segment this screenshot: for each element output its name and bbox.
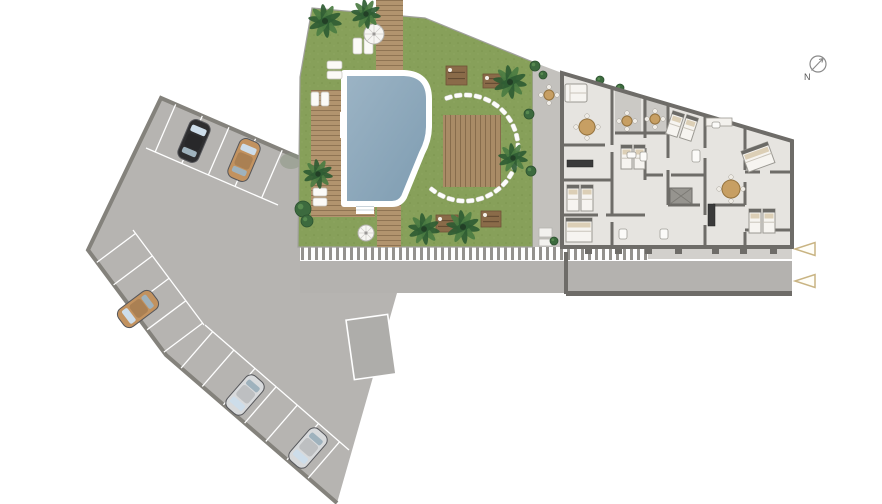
white-lounger [327,71,342,79]
bush-body [550,237,558,245]
bed-pillow [583,190,592,195]
palm-trunk [460,224,466,230]
chair [547,101,552,106]
bush-body [295,201,311,217]
bed-mattress [749,209,761,233]
chair [729,199,734,204]
bath-fixture [692,150,700,162]
entrance-arrow [795,243,815,256]
wood-walkway-bottom [377,204,401,247]
bush-highlight [540,72,543,75]
chair [617,119,622,124]
lounger-pillow [485,76,489,80]
fence-stub [712,249,719,254]
site-plan-canvas: N [0,0,882,504]
white-lounger [311,92,319,106]
entrance-arrows [795,243,815,288]
chair [661,117,666,122]
chair [729,175,734,180]
stepping-stone [466,198,474,203]
wood-deck-center [443,115,501,187]
driveway-wall-left [564,252,568,294]
single-parking-stall [346,314,396,379]
bush-highlight [532,63,536,67]
bush [301,215,313,227]
table-top [579,119,595,135]
chair [596,125,601,130]
bed-headboard [634,145,645,149]
fence-stub [770,249,777,254]
chair [539,93,544,98]
chair [585,136,590,141]
bed [581,185,593,211]
white-lounger [327,61,342,69]
chair [574,125,579,130]
bed [763,209,775,233]
bed-pillow [568,223,591,228]
bed-pillow [751,214,760,219]
bed-headboard [749,209,761,213]
access-road [300,261,792,293]
bush [539,71,547,79]
chair [547,85,552,90]
bed-mattress [566,218,592,242]
parasol-pole [364,231,367,234]
chair [555,93,560,98]
bush [524,109,534,119]
lounger-pillow [438,217,442,221]
parasol [358,225,374,241]
white-lounger [321,92,329,106]
bed-pillow [569,190,578,195]
chair [625,127,630,132]
chair [653,109,658,114]
bath-fixture [619,229,627,239]
fence-stub [675,249,682,254]
fence-stub [645,249,652,254]
annotations: N [795,56,826,288]
chair [717,187,722,192]
bed-pillow [765,214,774,219]
fence-stub [615,249,622,254]
bush-highlight [528,168,532,172]
bush [530,61,540,71]
bush-body [539,71,547,79]
bed-headboard [581,185,593,189]
apartment-building [539,73,792,247]
bed-mattress [763,209,775,233]
bed-headboard [566,218,592,222]
stepping-stone [464,93,472,98]
chair [653,125,658,130]
bush-highlight [298,204,304,210]
bush [526,166,536,176]
palm-trunk [315,171,320,176]
kitchen-counter [567,160,593,167]
compass-label: N [804,72,811,82]
bath-fixture [660,229,668,239]
terrace-utility-boxes [539,228,552,246]
palm-trunk [510,155,515,160]
site-plan: N [0,0,882,504]
fence-stub [740,249,747,254]
bed-mattress [567,185,579,211]
palm-trunk [421,226,427,232]
bed [749,209,761,233]
stair-core [670,188,692,204]
compass-icon: N [804,56,826,82]
chair [741,187,746,192]
table-top [622,116,632,126]
bush-body [530,61,540,71]
table-top [650,114,660,124]
kitchen-counter [708,204,715,226]
white-lounger [353,38,362,54]
driveway-wall-bottom [566,291,792,296]
chair [645,117,650,122]
stepping-stone [454,93,463,98]
bed-headboard [567,185,579,189]
white-lounger [313,188,327,196]
bath-fixture [640,152,647,161]
bed-headboard [621,145,632,149]
bush-body [526,166,536,176]
pool-steps [356,203,374,214]
bath-fixture [627,152,636,158]
wood-lounger [446,66,467,85]
single-parking-stall-outline [346,314,396,379]
bush-body [524,109,534,119]
bush-highlight [526,111,530,115]
lounger-pillow [483,213,487,217]
table-top [544,90,554,100]
bath-fixture [712,122,720,128]
chair [625,111,630,116]
bush [295,201,311,217]
sofa [565,84,587,102]
table-top [722,180,740,198]
chair [633,119,638,124]
bed [566,218,592,242]
bush-highlight [597,77,600,80]
parasol-pole [372,32,375,35]
fence-stub [585,249,592,254]
chair [585,114,590,119]
bush-highlight [551,238,554,241]
palm-trunk [322,18,328,24]
palm-trunk [507,79,513,85]
bush-highlight [303,217,307,221]
stepping-stone [456,198,464,203]
bed [567,185,579,211]
lounger-pillow [448,68,452,72]
bed-headboard [763,209,775,213]
entrance-arrow [795,275,815,288]
bush-body [301,215,313,227]
palm-trunk [363,11,368,16]
bed-mattress [581,185,593,211]
white-lounger [313,198,327,206]
wood-lounger [481,211,501,227]
bush [550,237,558,245]
